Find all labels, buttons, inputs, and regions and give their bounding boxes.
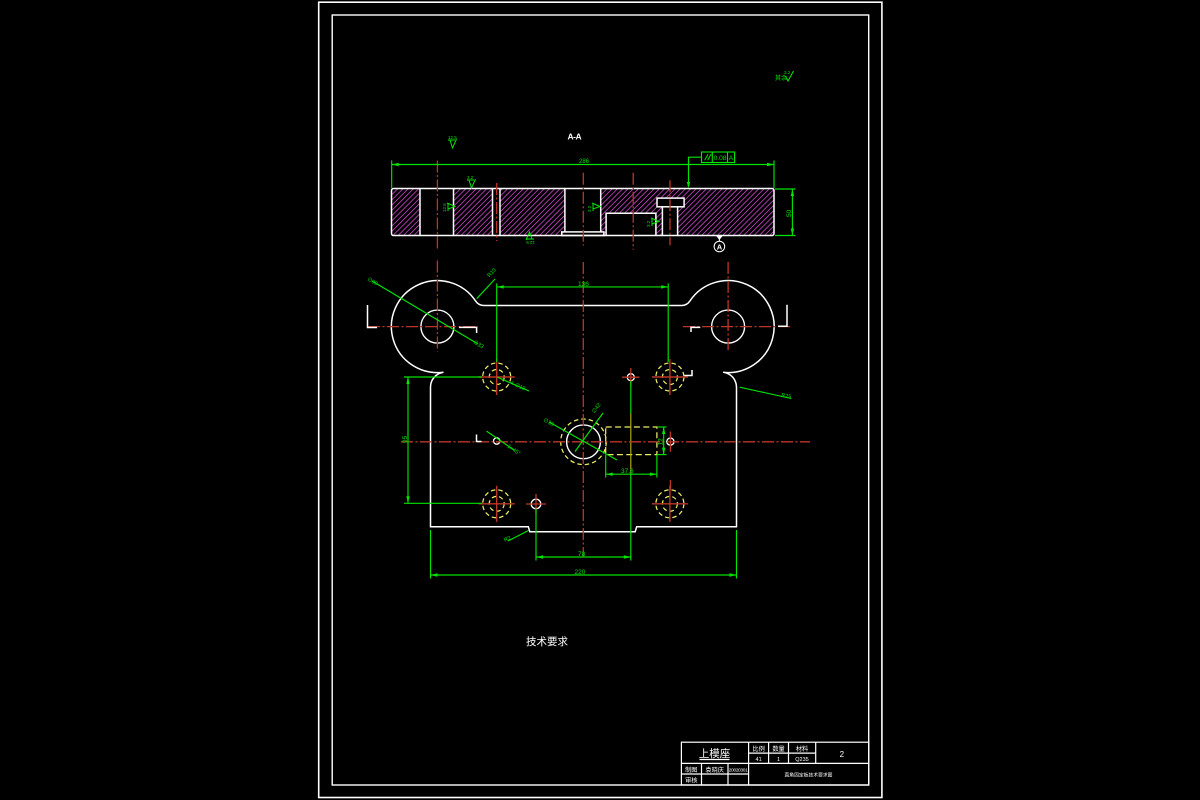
svg-text:3.2: 3.2: [646, 220, 651, 227]
svg-text:3.2: 3.2: [467, 175, 474, 180]
svg-text:A: A: [729, 155, 734, 162]
svg-text:12.5: 12.5: [448, 135, 457, 140]
svg-text:上模座: 上模座: [699, 747, 731, 760]
svg-text:136: 136: [578, 281, 589, 288]
svg-text:78: 78: [578, 551, 586, 558]
svg-text:41: 41: [756, 757, 762, 763]
svg-text:审核: 审核: [685, 777, 697, 785]
svg-text:220: 220: [575, 569, 586, 576]
svg-text:其余: 其余: [775, 74, 787, 82]
svg-text:A-A: A-A: [568, 132, 582, 142]
svg-text:技术要求: 技术要求: [526, 635, 568, 648]
svg-text:3.2: 3.2: [784, 70, 791, 75]
svg-text:材料: 材料: [796, 745, 808, 753]
svg-text:0.08: 0.08: [714, 155, 727, 162]
svg-text:袁晓庆: 袁晓庆: [705, 766, 724, 774]
svg-text:37.6: 37.6: [621, 468, 634, 475]
svg-text:50: 50: [786, 209, 793, 217]
svg-text:A: A: [717, 242, 723, 251]
svg-text:12.5: 12.5: [442, 203, 447, 212]
svg-text:2: 2: [840, 750, 845, 759]
svg-text:95: 95: [402, 435, 409, 443]
svg-text:3.2: 3.2: [587, 205, 592, 212]
svg-text:12.5: 12.5: [526, 240, 535, 245]
svg-text:286: 286: [579, 159, 590, 165]
svg-text:Q235: Q235: [795, 757, 808, 763]
svg-text:20020301: 20020301: [729, 767, 748, 772]
svg-text:比例: 比例: [752, 745, 764, 753]
svg-text:12: 12: [658, 438, 665, 446]
svg-text:数量: 数量: [772, 745, 784, 753]
svg-text:直角固定板技术要求图: 直角固定板技术要求图: [785, 772, 833, 779]
svg-text:制图: 制图: [685, 766, 697, 774]
svg-text:1: 1: [777, 757, 780, 763]
